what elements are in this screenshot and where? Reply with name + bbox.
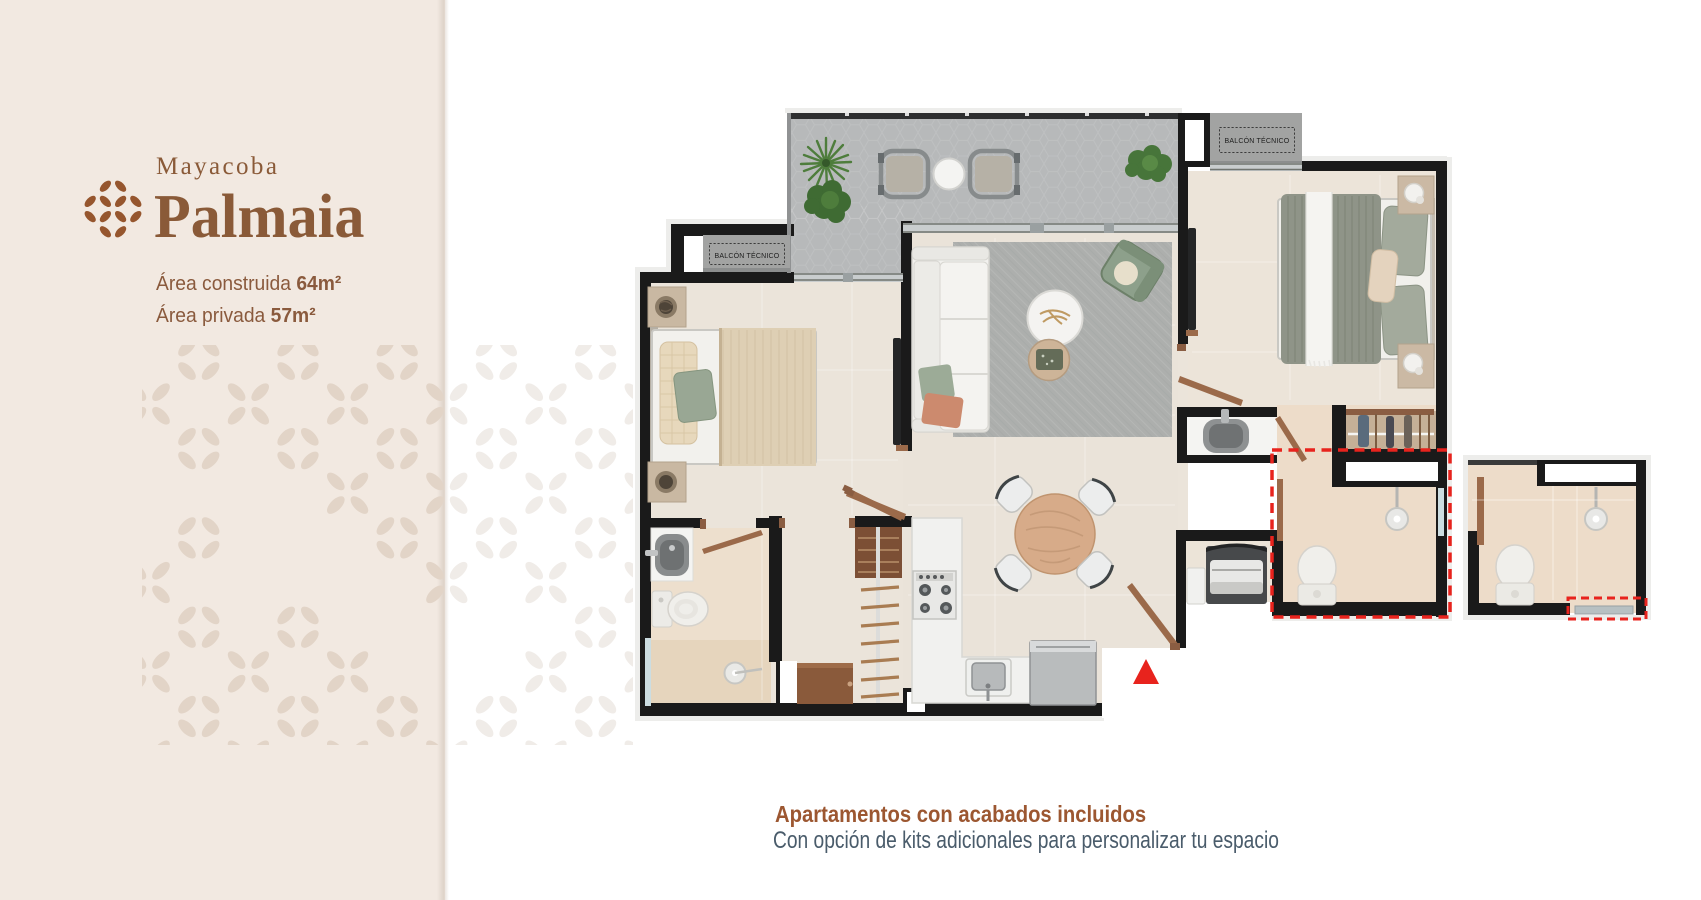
svg-text:BALCÓN TÉCNICO: BALCÓN TÉCNICO bbox=[1225, 136, 1290, 145]
svg-text:BALCÓN TÉCNICO: BALCÓN TÉCNICO bbox=[715, 251, 780, 260]
